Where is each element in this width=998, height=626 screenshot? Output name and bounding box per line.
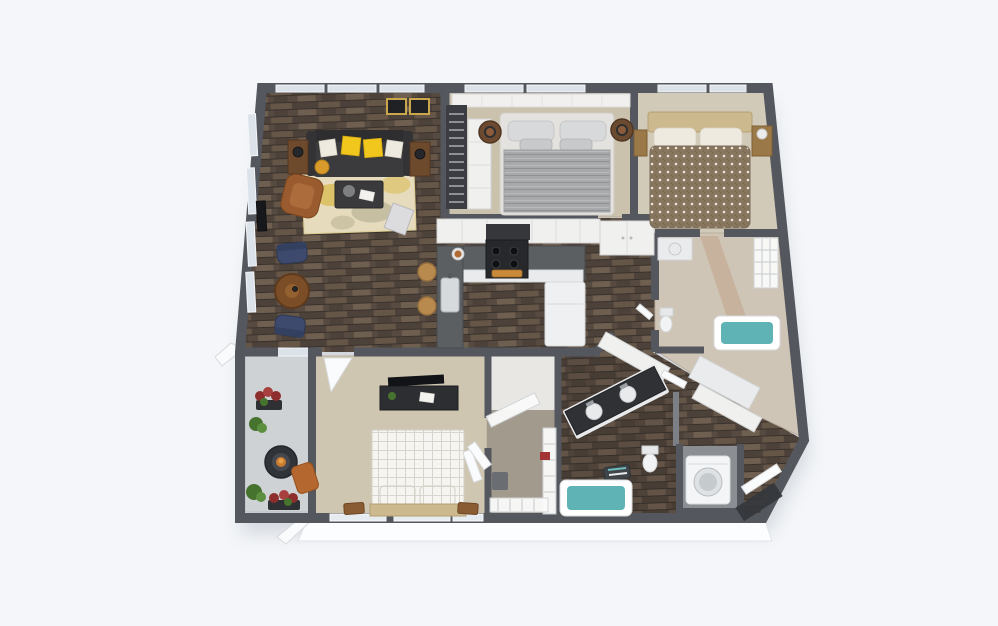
wire-shelf — [754, 238, 778, 288]
bench — [344, 502, 365, 514]
windows-top — [276, 85, 746, 92]
reading-nook — [274, 241, 309, 338]
gold-tray — [315, 160, 329, 174]
end-table-left — [288, 140, 308, 174]
end-table-right — [410, 142, 430, 176]
tub — [714, 316, 780, 350]
refrigerator — [545, 282, 585, 346]
red-garment — [540, 452, 550, 460]
framed-art — [387, 99, 406, 114]
diamond-duvet — [650, 146, 750, 228]
yellow-pillow — [363, 138, 383, 158]
console-plant — [388, 392, 396, 400]
plaid-pillow — [380, 486, 415, 505]
range-hood — [486, 224, 530, 240]
bench — [458, 502, 479, 514]
ladder-shelf-alcove — [446, 105, 467, 209]
hamper — [492, 472, 508, 490]
headboard — [370, 504, 466, 516]
toilet — [642, 446, 658, 472]
headboard-panel-wall — [452, 94, 630, 107]
floor-plan-render — [0, 0, 998, 626]
kitchen-wall-cabinets — [437, 219, 600, 243]
vanity-sink — [658, 238, 692, 260]
plaid-pillow — [420, 486, 455, 505]
white-pillow — [654, 128, 696, 148]
floor-plan-image — [0, 0, 998, 626]
stove — [486, 240, 528, 278]
sofa — [306, 130, 413, 177]
plate — [452, 248, 464, 260]
barrel-nightstand-right — [611, 119, 633, 141]
nightstand-lamp — [752, 126, 772, 156]
white-pillow — [385, 140, 403, 158]
peninsula-sink — [437, 246, 463, 348]
laundry-closet — [686, 456, 730, 504]
bar-stool — [418, 263, 436, 281]
wall-tv — [256, 201, 267, 231]
tub — [560, 480, 632, 516]
nightstand — [634, 130, 647, 156]
towel-basket — [603, 464, 631, 481]
white-pillow — [700, 128, 742, 148]
bed-checkered — [370, 430, 466, 516]
toilet — [660, 308, 673, 332]
sliding-door — [277, 348, 309, 356]
coffee-table — [335, 181, 383, 208]
framed-art — [410, 99, 429, 114]
yellow-pillow — [341, 136, 361, 156]
bed-grey — [500, 113, 614, 215]
baking-tray — [492, 270, 522, 277]
white-pillow — [319, 139, 337, 157]
hall-closet — [600, 221, 654, 255]
barrel-nightstand-left — [479, 121, 501, 143]
bar-stool — [418, 297, 436, 315]
